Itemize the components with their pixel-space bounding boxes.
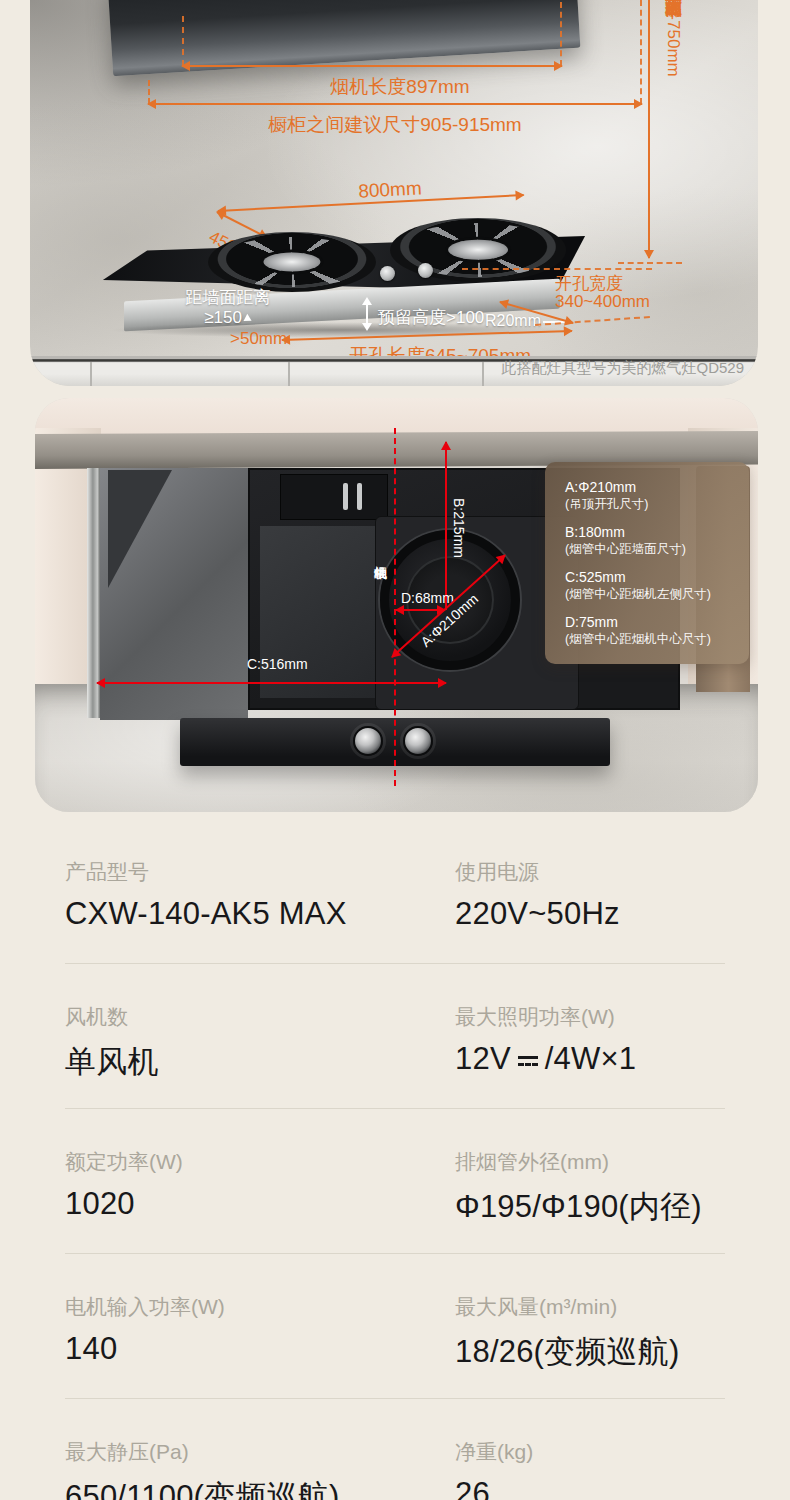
spec-label: 使用电源: [455, 858, 539, 886]
dim-c-label: C:516mm: [247, 656, 308, 672]
stove-burner-left: [208, 232, 376, 292]
spec-value: 140: [65, 1331, 117, 1367]
small-arrow-icon: [243, 314, 253, 324]
divider: [65, 1398, 725, 1399]
wall-distance-label-line1: 距墙面距离: [158, 286, 298, 309]
cabinet-seam: [90, 362, 92, 386]
spec-label: 净重(kg): [455, 1438, 533, 1466]
vent-box: [280, 474, 388, 520]
spec-value: 220V~50Hz: [455, 896, 620, 932]
reserve-height-label: 预留高度>100: [378, 306, 484, 329]
duct-diagram-card: B:215mm 烟机中轴线 D:68mm A:Φ210mm C:516mm A:…: [35, 398, 758, 812]
spec-value: 单风机: [65, 1041, 159, 1083]
spec-label: 最大照明功率(W): [455, 1003, 615, 1031]
dim-cabinet-gap-label: 橱柜之间建议尺寸905-915mm: [220, 112, 570, 138]
spec-value: 1020: [65, 1186, 135, 1222]
stove-knob: [380, 266, 395, 281]
dim-extension-line: [182, 16, 184, 66]
cabinet-seam: [482, 362, 484, 386]
stove-knob: [418, 263, 433, 278]
divider: [65, 1108, 725, 1109]
vent-slot: [343, 483, 348, 510]
legend-item-c: C:525mm (烟管中心距烟机左侧尺寸): [565, 569, 749, 602]
spec-row-pressure-weight: 最大静压(Pa) 650/1100(变频巡航) 净重(kg) 26: [65, 1432, 725, 1500]
spec-label: 电机输入功率(W): [65, 1293, 225, 1321]
spec-row-model-power: 产品型号 CXW-140-AK5 MAX 使用电源 220V~50Hz: [65, 852, 725, 997]
legend-item-b: B:180mm (烟管中心距墙面尺寸): [565, 524, 749, 557]
vertical-double-arrow-icon: [366, 304, 368, 324]
vent-slot: [357, 483, 362, 510]
hood-knob-left: [353, 726, 383, 756]
spec-label: 额定功率(W): [65, 1148, 183, 1176]
spec-value: Φ195/Φ190(内径): [455, 1186, 702, 1228]
spec-value: 650/1100(变频巡航): [65, 1476, 339, 1500]
divider: [65, 963, 725, 964]
spec-label: 最大静压(Pa): [65, 1438, 189, 1466]
dim-hang-height-label: 面到吊柜底部的距离650-750mm: [662, 0, 685, 356]
dim-d-label: D:68mm: [401, 590, 454, 606]
dimension-legend: A:Φ210mm (吊顶开孔尺寸) B:180mm (烟管中心距墙面尺寸) C:…: [545, 462, 749, 664]
dim-hood-length-label: 烟机长度897mm: [250, 74, 550, 100]
hood-knob-right: [403, 726, 433, 756]
dim-extension-line: [560, 2, 562, 66]
dim-b-label: B:215mm: [451, 498, 467, 558]
spec-value: CXW-140-AK5 MAX: [65, 896, 347, 932]
spec-value: 18/26(变频巡航): [455, 1331, 679, 1373]
spec-value: 26: [455, 1476, 490, 1500]
product-detail-page: 烟机长度897mm 橱柜之间建议尺寸905-915mm 面到吊柜底部的距离650…: [0, 0, 790, 1500]
spec-value: 12V/4W×1: [455, 1041, 636, 1077]
install-diagram-card: 烟机长度897mm 橱柜之间建议尺寸905-915mm 面到吊柜底部的距离650…: [30, 0, 758, 386]
wall-distance-label-line2: ≥150: [158, 308, 298, 328]
cutout-width-label-line2: 340~400mm: [555, 292, 650, 312]
spec-row-fan-light: 风机数 单风机 最大照明功率(W) 12V/4W×1: [65, 997, 725, 1142]
cabinet-seam: [288, 362, 290, 386]
spec-label: 最大风量(m³/min): [455, 1293, 617, 1321]
legend-item-d: D:75mm (烟管中心距烟机中心尺寸): [565, 614, 749, 647]
corner-radius-label: R20mm: [485, 312, 541, 330]
dim-extension-line: [640, 0, 642, 104]
edge-min-label: >50mm: [230, 329, 287, 349]
spec-label: 排烟管外径(mm): [455, 1148, 609, 1176]
stove-model-caption: 此搭配灶具型号为美的燃气灶QD529: [501, 359, 744, 378]
dc-voltage-icon: [518, 1055, 538, 1069]
spec-label: 风机数: [65, 1003, 128, 1031]
spec-row-power-duct: 额定功率(W) 1020 排烟管外径(mm) Φ195/Φ190(内径): [65, 1142, 725, 1287]
legend-item-a: A:Φ210mm (吊顶开孔尺寸): [565, 479, 749, 512]
divider: [65, 1253, 725, 1254]
spec-label: 产品型号: [65, 858, 149, 886]
dim-extension-line: [462, 268, 652, 270]
stove-burner-right: [390, 218, 566, 282]
spec-row-motor-airflow: 电机输入功率(W) 140 最大风量(m³/min) 18/26(变频巡航): [65, 1287, 725, 1432]
